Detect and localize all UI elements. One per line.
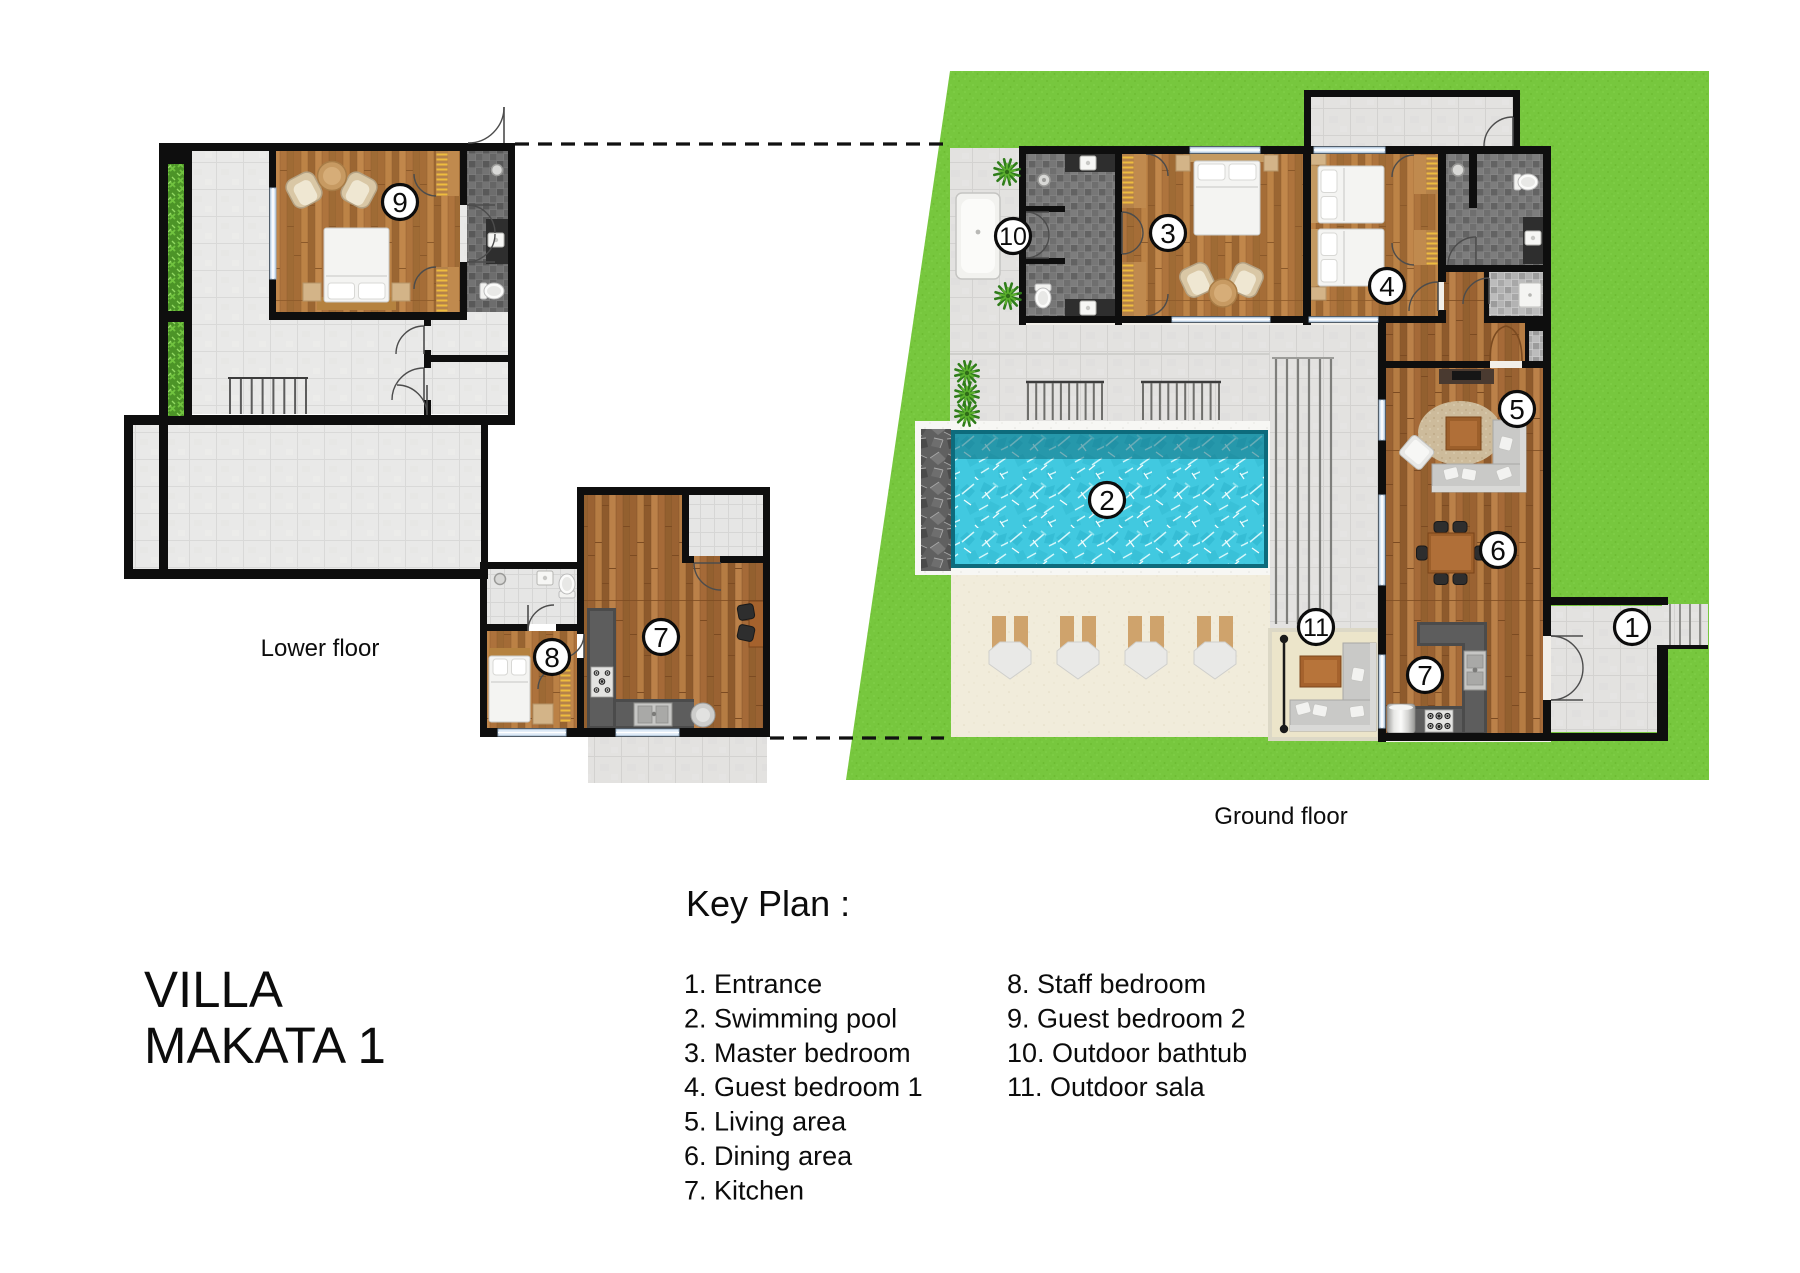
svg-text:2. Swimming pool: 2. Swimming pool — [684, 1003, 897, 1033]
svg-text:VILLA: VILLA — [144, 961, 283, 1018]
svg-text:Lower floor: Lower floor — [261, 635, 380, 662]
svg-text:5: 5 — [1509, 394, 1525, 425]
svg-text:11: 11 — [1303, 614, 1329, 642]
svg-text:9: 9 — [392, 187, 408, 218]
svg-text:4. Guest bedroom 1: 4. Guest bedroom 1 — [684, 1072, 923, 1102]
svg-text:9. Guest bedroom 2: 9. Guest bedroom 2 — [1007, 1003, 1246, 1033]
svg-text:2: 2 — [1099, 485, 1115, 516]
svg-text:4: 4 — [1379, 271, 1395, 302]
svg-text:10: 10 — [999, 223, 1027, 251]
svg-text:10. Outdoor bathtub: 10. Outdoor bathtub — [1007, 1038, 1247, 1068]
svg-text:6. Dining area: 6. Dining area — [684, 1141, 853, 1171]
svg-text:7: 7 — [653, 622, 669, 653]
svg-text:5. Living area: 5. Living area — [684, 1107, 847, 1137]
svg-text:7: 7 — [1417, 660, 1433, 691]
svg-text:11. Outdoor sala: 11. Outdoor sala — [1007, 1072, 1206, 1102]
svg-text:1: 1 — [1624, 612, 1640, 643]
svg-text:8. Staff bedroom: 8. Staff bedroom — [1007, 969, 1206, 999]
svg-text:3. Master bedroom: 3. Master bedroom — [684, 1038, 911, 1068]
svg-text:3: 3 — [1160, 218, 1176, 249]
svg-text:Ground floor: Ground floor — [1214, 803, 1347, 830]
svg-text:7. Kitchen: 7. Kitchen — [684, 1175, 804, 1205]
svg-text:Key Plan :: Key Plan : — [686, 883, 850, 924]
svg-text:1. Entrance: 1. Entrance — [684, 969, 822, 999]
svg-text:8: 8 — [544, 642, 560, 673]
svg-text:6: 6 — [1490, 535, 1506, 566]
svg-text:MAKATA 1: MAKATA 1 — [144, 1017, 386, 1074]
